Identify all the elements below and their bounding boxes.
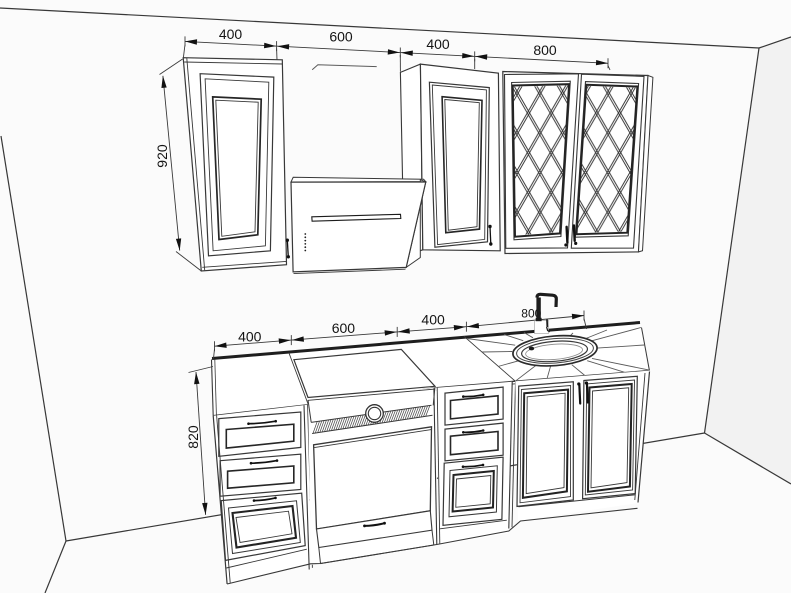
svg-text:400: 400 — [426, 36, 450, 52]
svg-text:400: 400 — [421, 312, 445, 328]
svg-text:400: 400 — [238, 329, 262, 345]
svg-text:600: 600 — [332, 320, 356, 336]
svg-text:820: 820 — [185, 425, 201, 449]
svg-text:920: 920 — [154, 144, 170, 168]
svg-text:600: 600 — [329, 29, 353, 45]
svg-text:400: 400 — [219, 26, 243, 42]
svg-text:800: 800 — [533, 42, 557, 58]
